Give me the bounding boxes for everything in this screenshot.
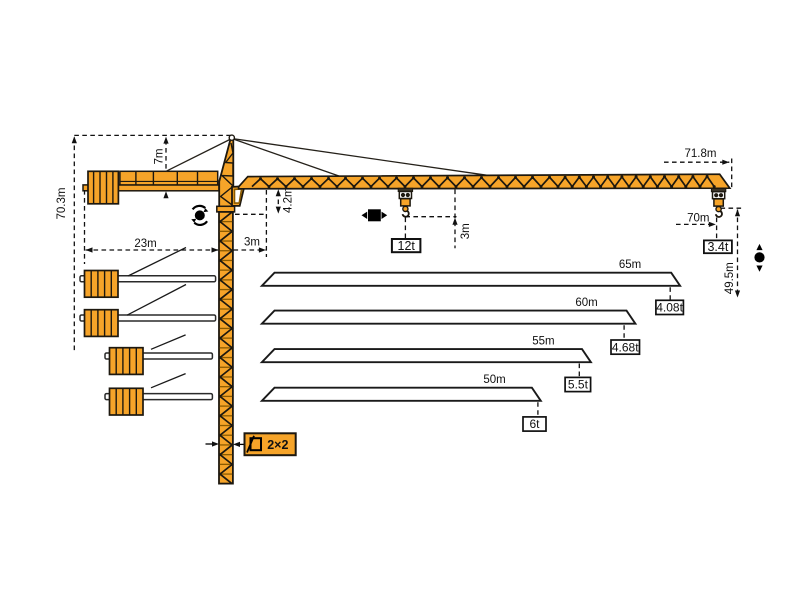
svg-text:4.68t: 4.68t	[612, 340, 639, 354]
svg-text:3m: 3m	[460, 223, 472, 239]
svg-text:4.08t: 4.08t	[656, 301, 683, 315]
svg-text:50m: 50m	[483, 374, 505, 386]
svg-text:5.5t: 5.5t	[568, 378, 589, 392]
svg-text:49.5m: 49.5m	[724, 262, 736, 294]
svg-text:3m: 3m	[244, 236, 260, 248]
svg-text:4.2m: 4.2m	[282, 187, 294, 213]
svg-text:2×2: 2×2	[267, 438, 288, 452]
svg-text:12t: 12t	[398, 239, 416, 253]
svg-text:71.8m: 71.8m	[685, 148, 717, 160]
svg-text:55m: 55m	[532, 336, 554, 348]
svg-text:6t: 6t	[529, 417, 540, 431]
svg-text:60m: 60m	[575, 297, 597, 309]
svg-text:70.3m: 70.3m	[56, 188, 68, 220]
svg-text:65m: 65m	[619, 259, 641, 271]
svg-text:70m: 70m	[687, 213, 709, 225]
svg-text:23m: 23m	[134, 238, 156, 250]
svg-text:3.4t: 3.4t	[707, 240, 728, 254]
svg-text:7m: 7m	[154, 149, 166, 165]
